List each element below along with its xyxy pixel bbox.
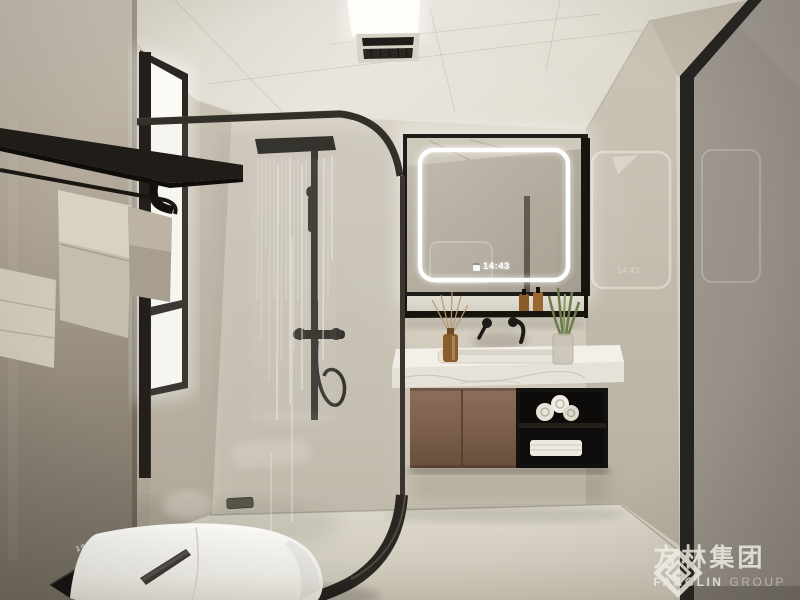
vignette	[0, 0, 800, 600]
bathroom-photo: 14:43 14:43 190 方林集团 FANGLINGROUP	[0, 0, 800, 600]
bathroom-scene	[0, 0, 800, 600]
